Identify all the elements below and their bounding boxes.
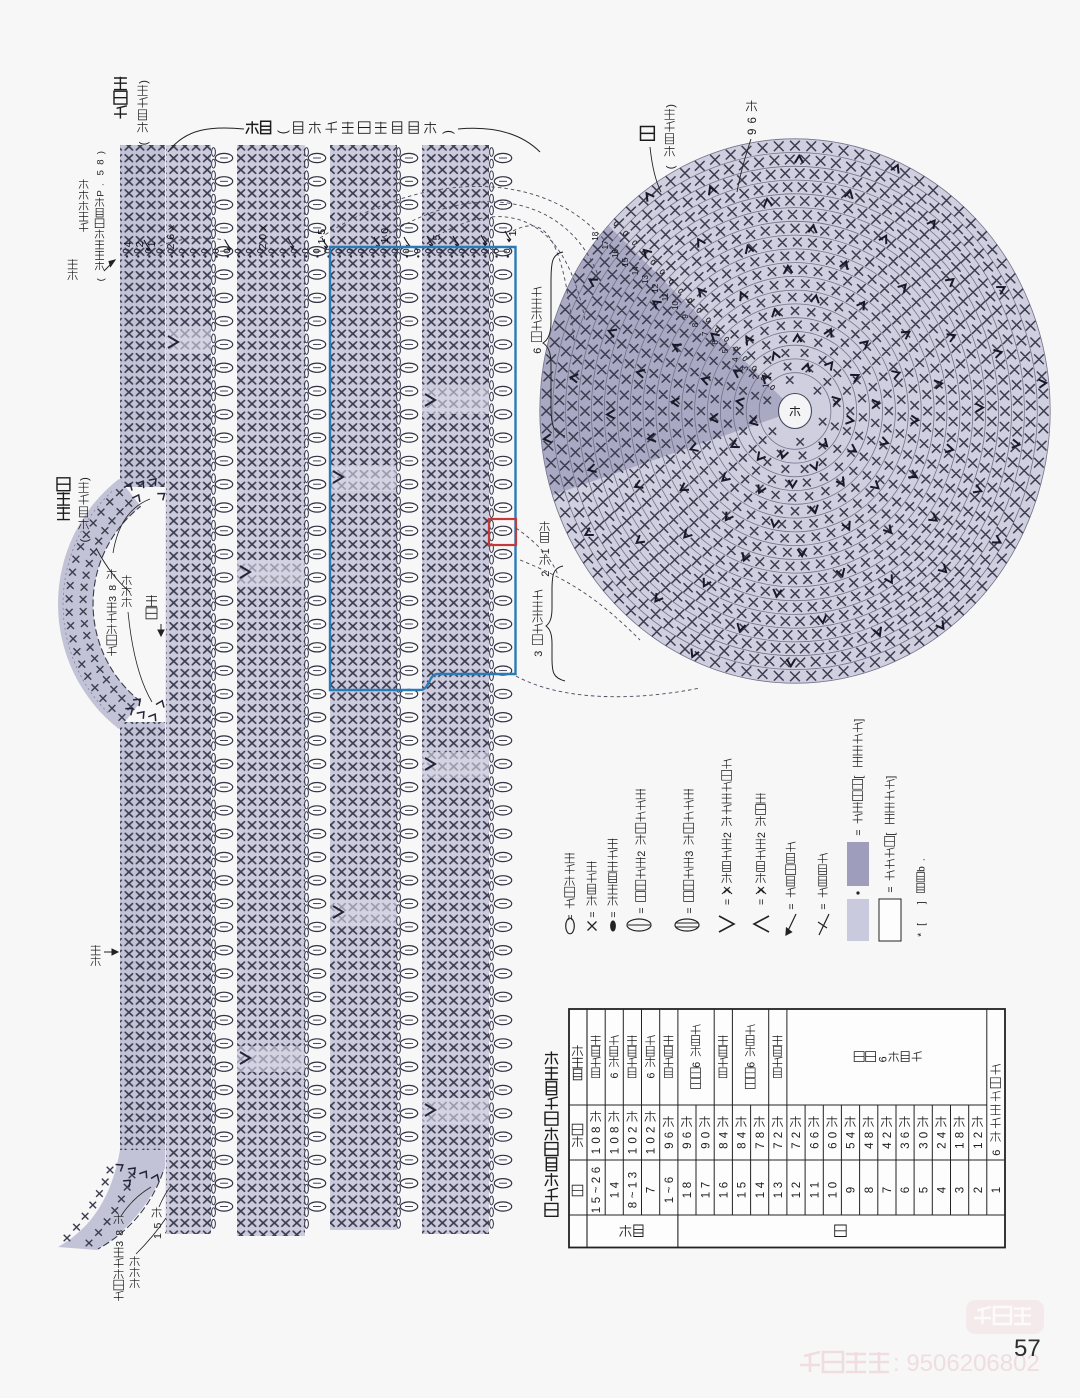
svg-text:=: = [684,907,696,913]
svg-text:1: 1 [591,1148,603,1154]
svg-text:6: 6 [532,348,544,354]
svg-text:16: 16 [611,249,620,258]
svg-text:8: 8 [609,1127,621,1133]
svg-text:): ) [95,151,106,154]
svg-text:5: 5 [591,1197,603,1203]
svg-text:x: x [165,224,177,230]
svg-text:2: 2 [646,1127,658,1133]
svg-text:5: 5 [721,348,730,353]
svg-text:3: 3 [773,1182,785,1188]
svg-text:8: 8 [591,1127,603,1133]
svg-text:5: 5 [846,1142,858,1148]
svg-text:=: = [608,911,620,917]
svg-text:0: 0 [591,1137,603,1143]
svg-text:2: 2 [722,832,734,838]
svg-text:0: 0 [379,228,391,234]
svg-text:]: ] [885,776,897,779]
svg-text:1: 1 [755,1192,767,1198]
svg-text:1: 1 [773,1192,785,1198]
svg-text:8: 8 [682,1182,694,1188]
svg-text:4: 4 [846,1131,858,1138]
svg-text:9: 9 [664,1142,676,1148]
svg-text:1: 1 [646,1148,658,1154]
svg-text:1: 1 [973,1142,985,1148]
svg-text:6: 6 [165,234,177,240]
svg-text:[: [ [885,833,897,836]
svg-text:(: ( [665,165,677,169]
svg-text:12: 12 [651,283,660,292]
svg-text:3: 3 [628,1172,640,1178]
svg-text:6: 6 [691,1062,703,1068]
svg-text:0: 0 [828,1132,840,1138]
svg-text:=: = [756,899,768,905]
svg-text:8: 8 [95,160,106,165]
svg-text:8: 8 [864,1132,876,1138]
svg-text:5: 5 [918,1187,930,1193]
svg-text:1: 1 [379,237,391,243]
svg-text:3: 3 [900,1142,912,1148]
svg-text:.: . [95,183,106,186]
svg-text:2: 2 [636,851,648,857]
svg-text:3: 3 [114,1241,126,1247]
svg-text:=: = [636,907,648,913]
svg-text:4: 4 [937,1131,949,1138]
svg-text:2: 2 [751,374,760,379]
svg-text:9: 9 [681,314,690,319]
svg-text:6: 6 [682,1132,694,1138]
svg-text:(: ( [276,129,290,134]
svg-text:): ) [441,130,455,134]
svg-text:0: 0 [257,234,269,240]
svg-text:3: 3 [955,1187,967,1193]
svg-text:.: . [917,858,928,861]
svg-text:8: 8 [691,322,700,327]
svg-text:6: 6 [991,1150,1003,1156]
svg-text:5: 5 [737,1182,749,1188]
svg-text:6: 6 [878,1056,890,1062]
svg-text:1: 1 [628,1148,640,1154]
svg-text:0: 0 [628,1137,640,1143]
svg-text:7: 7 [791,1142,803,1148]
svg-text:1: 1 [591,1207,603,1213]
svg-text:4: 4 [731,357,740,362]
svg-text:6: 6 [900,1187,912,1193]
svg-text:10: 10 [671,301,680,310]
svg-text:3: 3 [918,1142,930,1148]
svg-text:=: = [853,829,865,835]
svg-text:8: 8 [107,585,119,591]
svg-text:9: 9 [747,129,759,135]
svg-text:4: 4 [122,241,134,247]
svg-text:1: 1 [761,383,770,388]
svg-text:8: 8 [628,1202,640,1208]
svg-text:7: 7 [701,331,710,336]
svg-text:4: 4 [737,1131,749,1138]
svg-text:): ) [79,477,91,481]
svg-text:*: * [917,933,928,937]
svg-text:]: ] [853,719,865,722]
svg-text:0: 0 [828,1182,840,1188]
svg-text:): ) [138,80,150,84]
svg-text:1: 1 [809,1182,821,1188]
svg-text:6: 6 [664,1177,676,1183]
svg-text:1: 1 [316,238,328,244]
svg-text:14: 14 [631,266,640,275]
svg-text:2: 2 [756,832,768,838]
svg-text:1: 1 [791,1192,803,1198]
svg-text:b: b [917,866,928,872]
svg-text:8: 8 [114,1230,126,1236]
svg-text:4: 4 [864,1142,876,1149]
svg-text:0: 0 [646,1137,658,1143]
svg-text:6: 6 [591,1167,603,1173]
svg-text:=: = [565,914,577,920]
svg-text:8: 8 [737,1142,749,1148]
svg-text:15: 15 [621,257,630,266]
svg-text:1: 1 [540,548,552,554]
svg-text:[: [ [853,776,865,779]
svg-text:6: 6 [900,1132,912,1138]
svg-text:57: 57 [1014,1335,1041,1362]
svg-text:6: 6 [747,117,759,123]
svg-text:1: 1 [955,1142,967,1148]
svg-text:8: 8 [864,1187,876,1193]
svg-text:6: 6 [809,1132,821,1138]
svg-text:1: 1 [737,1192,749,1198]
svg-text:9: 9 [682,1142,694,1148]
svg-text:2: 2 [628,1127,640,1133]
svg-text:): ) [665,104,677,108]
svg-text:8: 8 [718,1142,730,1148]
svg-text:7: 7 [882,1187,894,1193]
svg-text:3: 3 [741,366,750,371]
svg-text:3: 3 [107,596,119,602]
svg-text:~: ~ [664,1186,676,1193]
svg-text:9: 9 [700,1142,712,1148]
svg-text:2: 2 [937,1142,949,1148]
svg-text:1: 1 [700,1192,712,1198]
svg-text:1: 1 [828,1192,840,1198]
svg-text:1: 1 [682,1192,694,1198]
svg-text:(: ( [138,141,150,145]
svg-text:=: = [587,911,599,917]
svg-text:=: = [786,903,798,909]
svg-text:2: 2 [973,1132,985,1138]
svg-text:0: 0 [700,1132,712,1138]
svg-text:7: 7 [646,1187,658,1193]
svg-text:7: 7 [773,1142,785,1148]
svg-text:4: 4 [937,1186,949,1193]
svg-text:2: 2 [540,571,552,577]
svg-text:5: 5 [95,170,106,175]
svg-text:x: x [257,224,269,230]
svg-text:2: 2 [791,1132,803,1138]
svg-text:2: 2 [591,1177,603,1183]
svg-text:6: 6 [809,1142,821,1148]
svg-text:~: ~ [628,1191,640,1198]
svg-text:7: 7 [755,1142,767,1148]
svg-text:8: 8 [955,1132,967,1138]
svg-text:1: 1 [152,1233,164,1239]
svg-text:6: 6 [828,1142,840,1148]
svg-text:1: 1 [991,1187,1003,1193]
svg-text:6: 6 [718,1182,730,1188]
svg-text:17: 17 [601,240,610,249]
svg-text:6: 6 [645,1073,657,1079]
svg-text:4: 4 [609,1181,621,1188]
svg-text:(: ( [95,277,106,281]
svg-text:[: [ [917,923,928,926]
svg-text:1: 1 [664,1197,676,1203]
svg-text:18: 18 [591,231,600,240]
svg-text:1: 1 [809,1192,821,1198]
svg-text:6: 6 [745,1062,757,1068]
svg-text:0: 0 [918,1132,930,1138]
svg-text:=: = [818,903,830,909]
svg-text:2: 2 [165,243,177,249]
svg-text:7: 7 [700,1182,712,1188]
svg-text:1: 1 [609,1192,621,1198]
svg-text:=: = [722,899,734,905]
svg-text:6: 6 [664,1132,676,1138]
svg-text:=: = [885,886,897,892]
svg-text:5: 5 [431,234,443,240]
svg-text:4: 4 [755,1181,767,1188]
svg-text:1: 1 [718,1192,730,1198]
svg-text:8: 8 [755,1132,767,1138]
svg-text:13: 13 [641,275,650,284]
svg-text:0: 0 [609,1137,621,1143]
svg-text:4: 4 [718,1131,730,1138]
svg-text:]: ] [917,901,928,904]
svg-text:6: 6 [711,340,720,345]
svg-text:2: 2 [973,1187,985,1193]
svg-text:1: 1 [507,230,519,236]
svg-text:1: 1 [628,1182,640,1188]
svg-text:9: 9 [846,1187,858,1193]
svg-text:2: 2 [257,243,269,249]
svg-text:2: 2 [773,1132,785,1138]
svg-text:4: 4 [882,1142,894,1149]
svg-text:3: 3 [533,651,545,657]
svg-text:2: 2 [882,1132,894,1138]
svg-text:6: 6 [609,1073,621,1079]
svg-text:P: P [95,190,106,196]
svg-text:2: 2 [791,1182,803,1188]
svg-text:~: ~ [591,1186,603,1193]
svg-text:1: 1 [609,1148,621,1154]
svg-text:(: ( [79,538,91,542]
svg-text:3: 3 [684,851,696,857]
svg-text:2: 2 [134,241,146,247]
svg-text:11: 11 [661,292,670,301]
